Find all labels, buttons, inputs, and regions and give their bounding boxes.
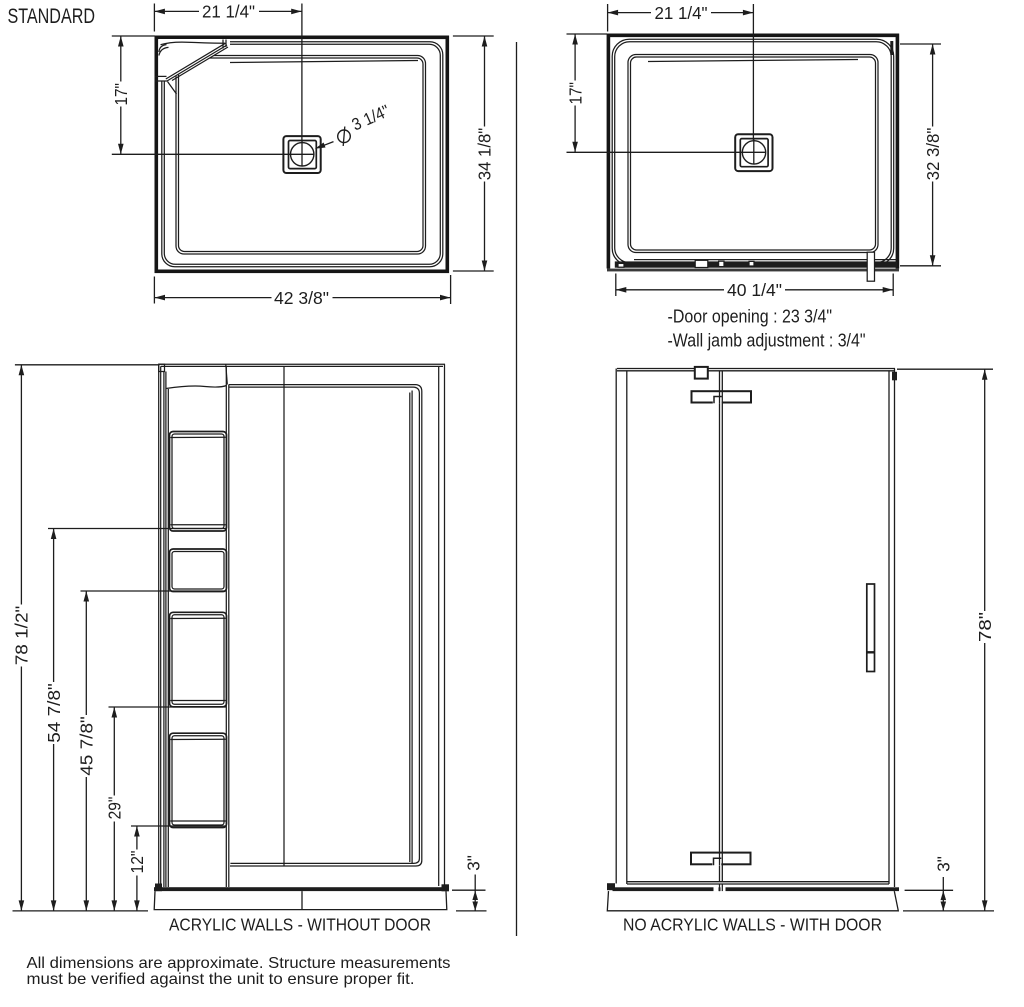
svg-text:3": 3": [934, 856, 954, 872]
svg-text:3": 3": [464, 855, 484, 871]
svg-text:STANDARD: STANDARD: [8, 5, 96, 28]
svg-text:21 1/4": 21 1/4": [202, 2, 255, 22]
svg-text:-Wall jamb adjustment : 3/4": -Wall jamb adjustment : 3/4": [668, 331, 866, 351]
svg-text:32 3/8": 32 3/8": [923, 128, 943, 181]
svg-text:NO ACRYLIC WALLS - WITH DOOR: NO ACRYLIC WALLS - WITH DOOR: [623, 915, 882, 935]
svg-text:42 3/8": 42 3/8": [274, 288, 329, 308]
svg-text:78": 78": [975, 612, 995, 642]
svg-text:34 1/8": 34 1/8": [475, 128, 495, 181]
svg-text:40 1/4": 40 1/4": [727, 280, 782, 300]
svg-text:45 7/8": 45 7/8": [77, 716, 97, 776]
svg-text:78 1/2": 78 1/2": [12, 606, 32, 666]
svg-text:must be verified against the u: must be verified against the unit to ens…: [27, 971, 415, 988]
svg-text:21 1/4": 21 1/4": [655, 3, 708, 23]
svg-text:17": 17": [565, 82, 585, 105]
svg-text:54 7/8": 54 7/8": [44, 683, 64, 743]
svg-text:-Door opening : 23 3/4": -Door opening : 23 3/4": [668, 307, 833, 327]
svg-text:17": 17": [111, 83, 131, 106]
svg-text:ACRYLIC WALLS - WITHOUT DOOR: ACRYLIC WALLS - WITHOUT DOOR: [169, 915, 431, 935]
svg-text:12": 12": [127, 851, 147, 874]
svg-text:29": 29": [105, 797, 125, 820]
svg-text:All dimensions are approximate: All dimensions are approximate. Structur…: [27, 955, 451, 972]
